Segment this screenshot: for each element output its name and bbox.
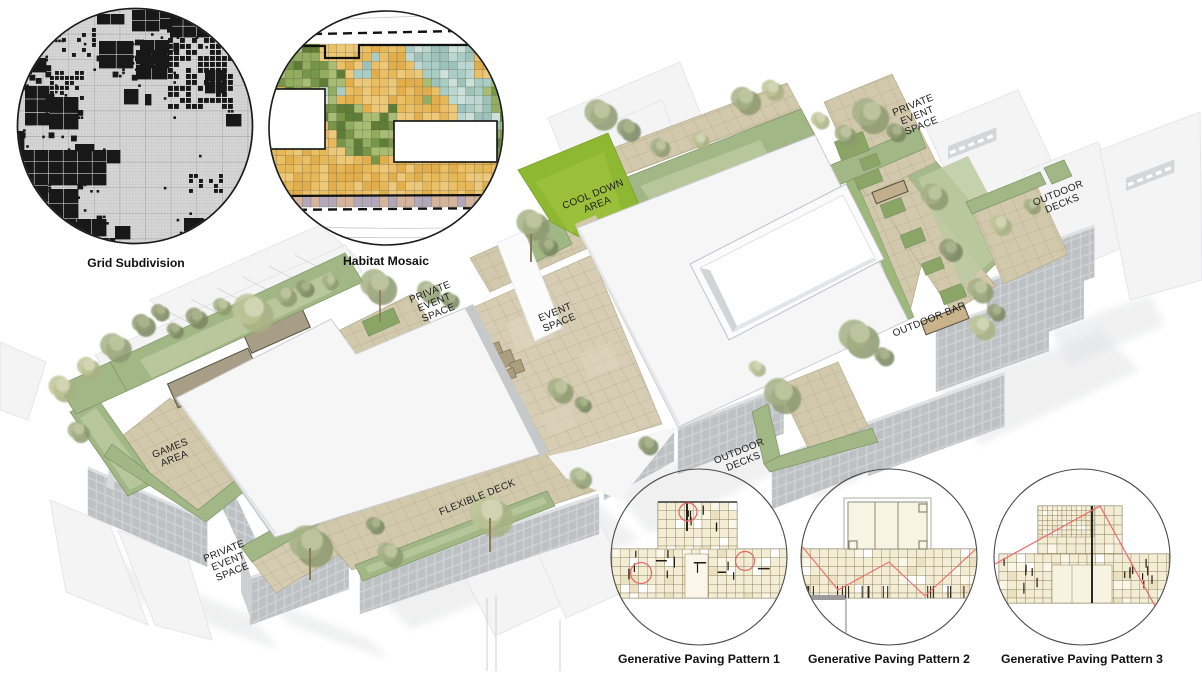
svg-text:Habitat Mosaic: Habitat Mosaic xyxy=(343,254,429,268)
svg-text:Grid Subdivision: Grid Subdivision xyxy=(87,256,185,270)
svg-text:Generative Paving Pattern 1: Generative Paving Pattern 1 xyxy=(618,652,780,666)
svg-text:Generative Paving Pattern 2: Generative Paving Pattern 2 xyxy=(808,652,970,666)
svg-text:Generative Paving Pattern 3: Generative Paving Pattern 3 xyxy=(1001,652,1163,666)
